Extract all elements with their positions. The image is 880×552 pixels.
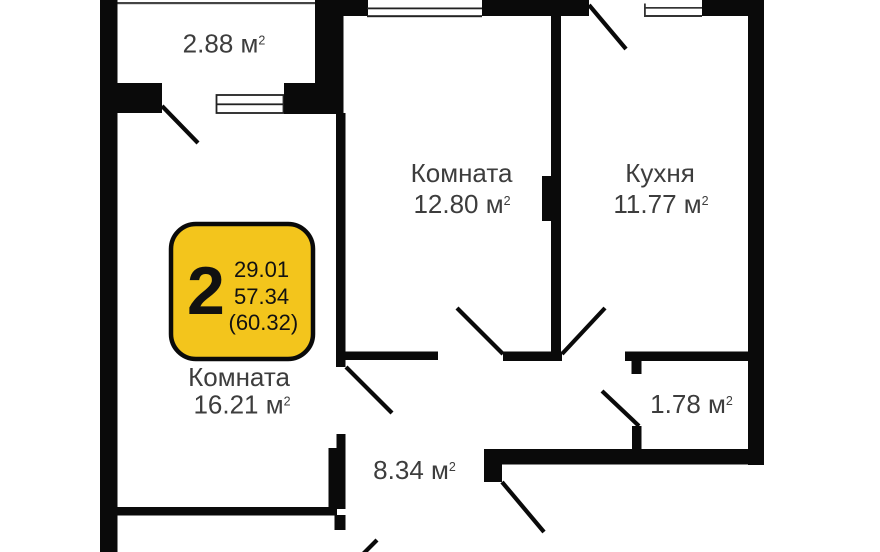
- svg-text:12.80 м2: 12.80 м2: [413, 189, 510, 219]
- svg-text:Комната: Комната: [411, 158, 513, 188]
- svg-text:Кухня: Кухня: [625, 158, 695, 188]
- svg-text:Комната: Комната: [188, 362, 290, 392]
- svg-text:11.77 м2: 11.77 м2: [613, 189, 708, 219]
- svg-text:2: 2: [187, 253, 225, 329]
- svg-text:16.21 м2: 16.21 м2: [193, 390, 290, 420]
- svg-text:29.01: 29.01: [234, 257, 289, 282]
- svg-text:8.34 м2: 8.34 м2: [373, 455, 456, 485]
- svg-text:1.78 м2: 1.78 м2: [650, 389, 733, 419]
- svg-text:2.88 м2: 2.88 м2: [183, 29, 266, 59]
- svg-text:57.34: 57.34: [234, 284, 289, 309]
- svg-text:(60.32): (60.32): [229, 310, 299, 335]
